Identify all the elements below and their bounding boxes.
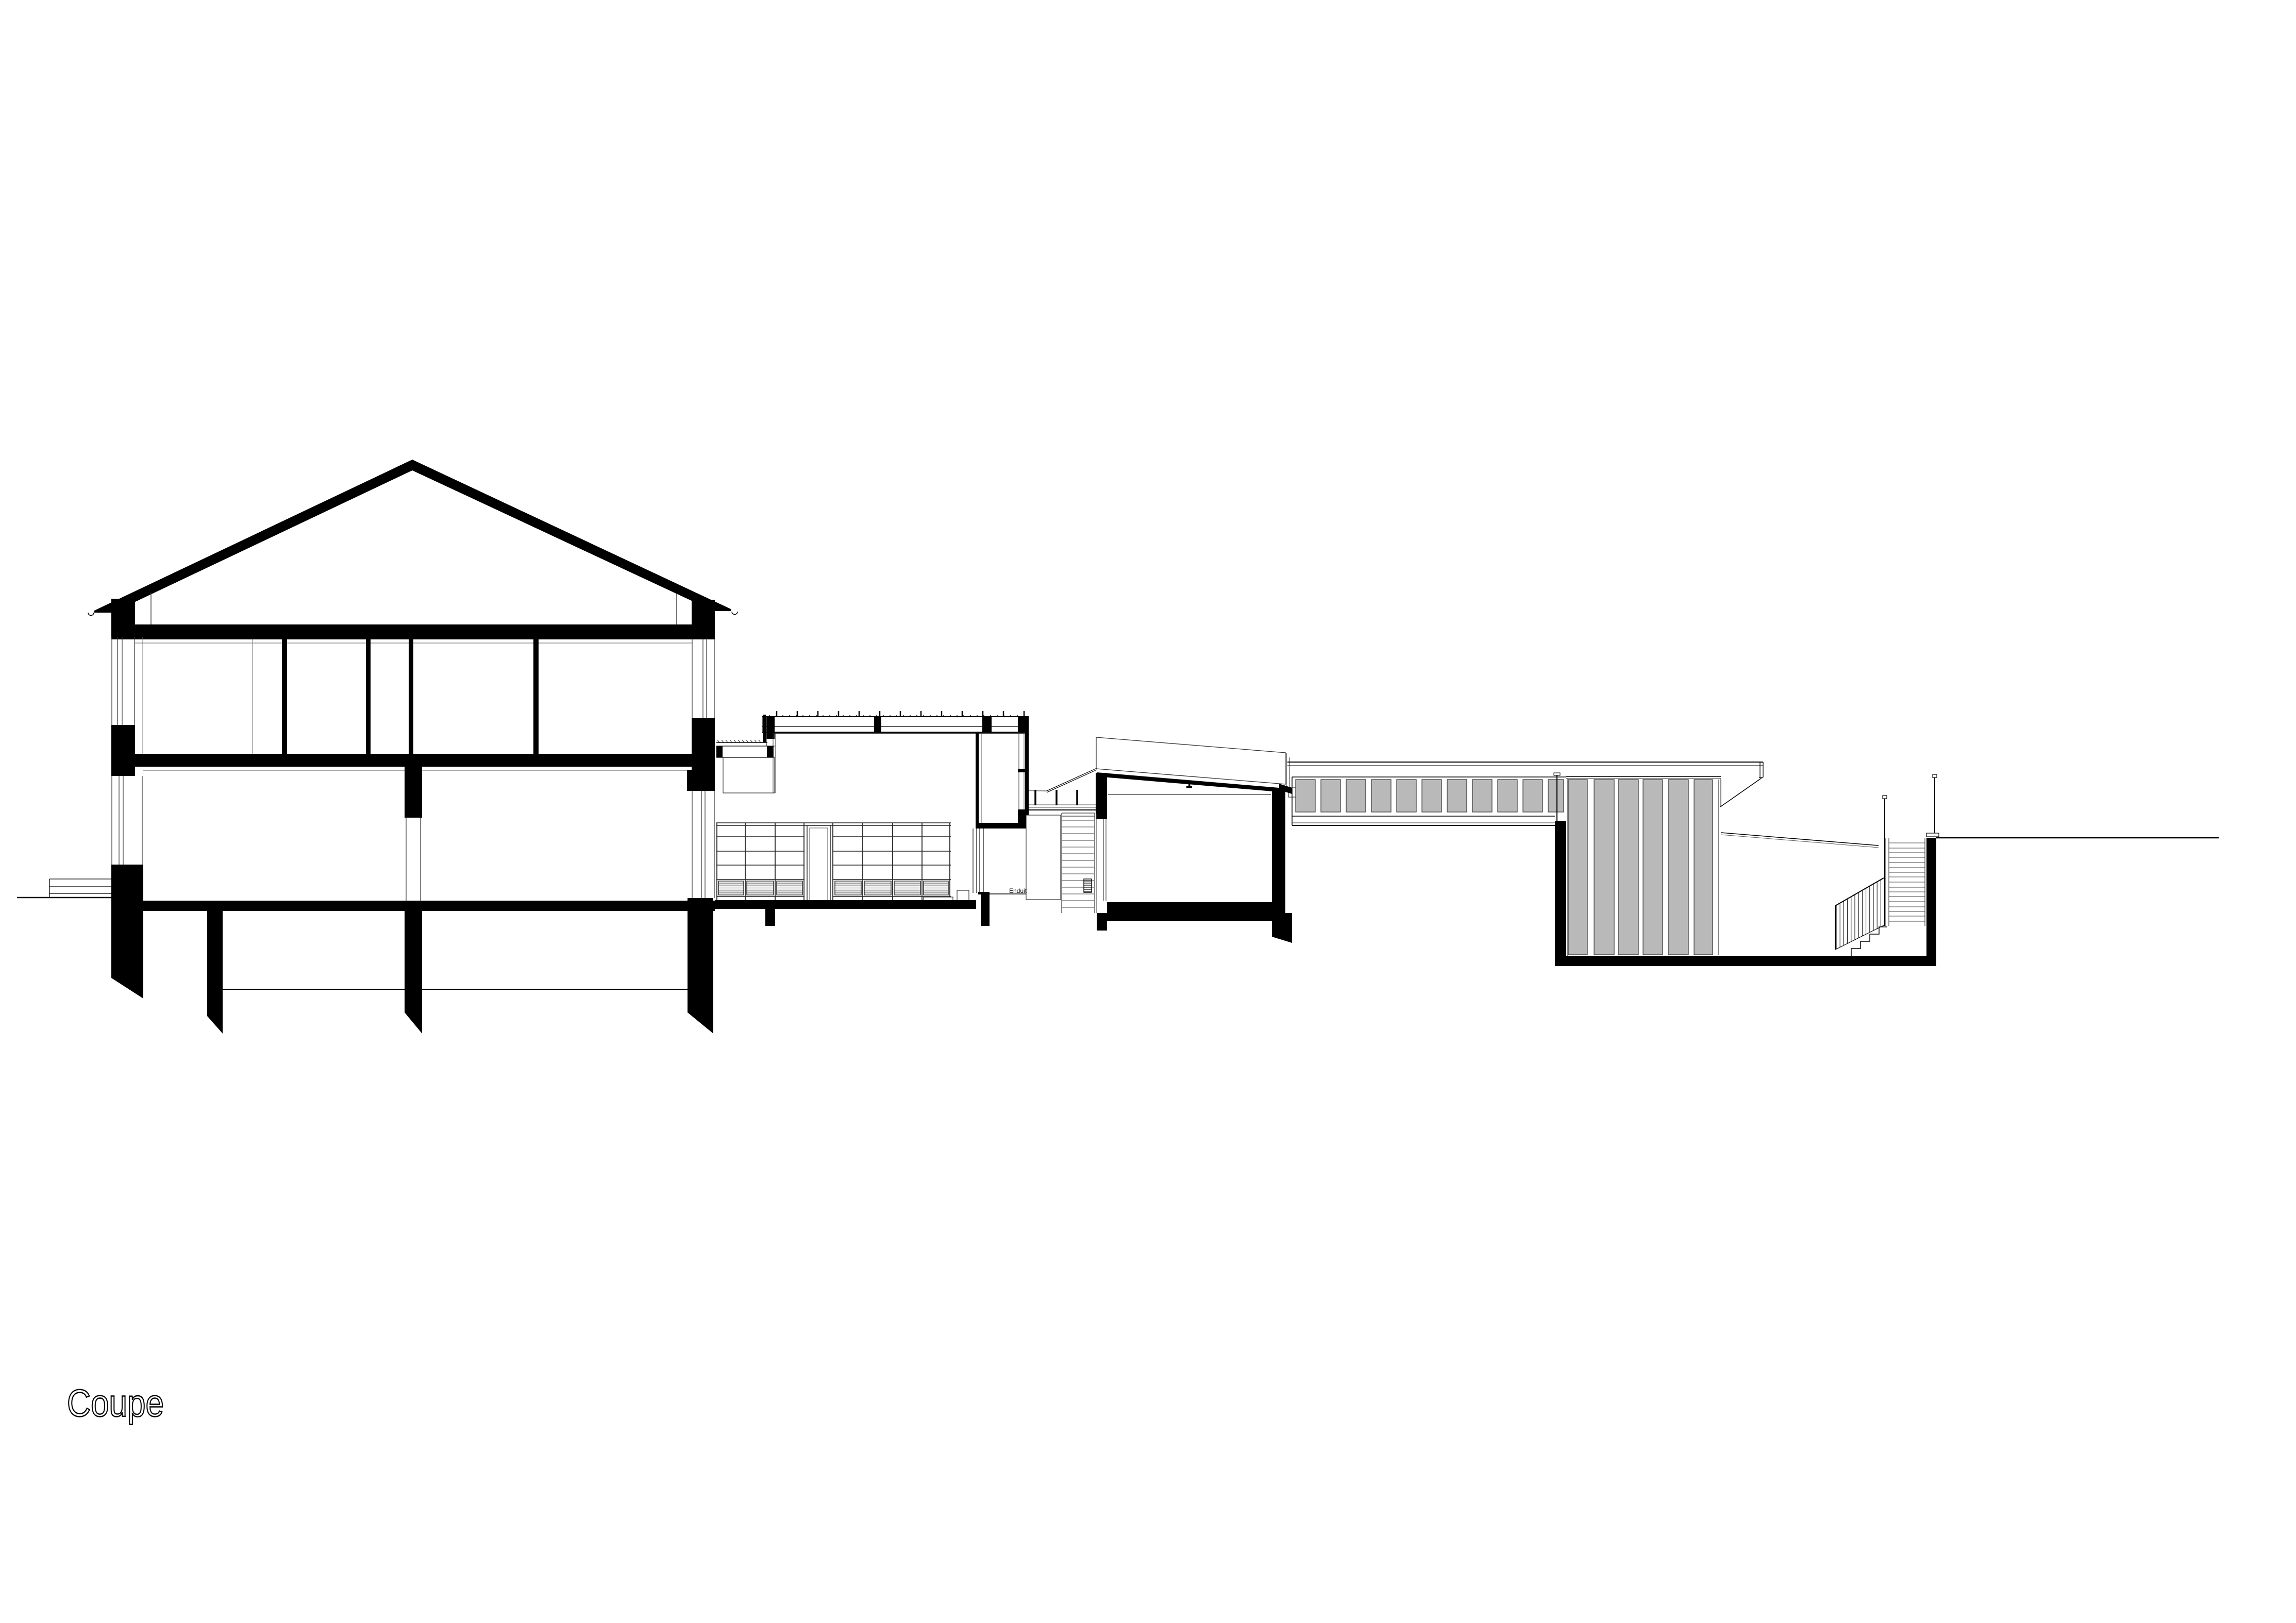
svg-text:Enduit: Enduit (1009, 887, 1027, 894)
svg-text:Coupe: Coupe (67, 1382, 164, 1425)
